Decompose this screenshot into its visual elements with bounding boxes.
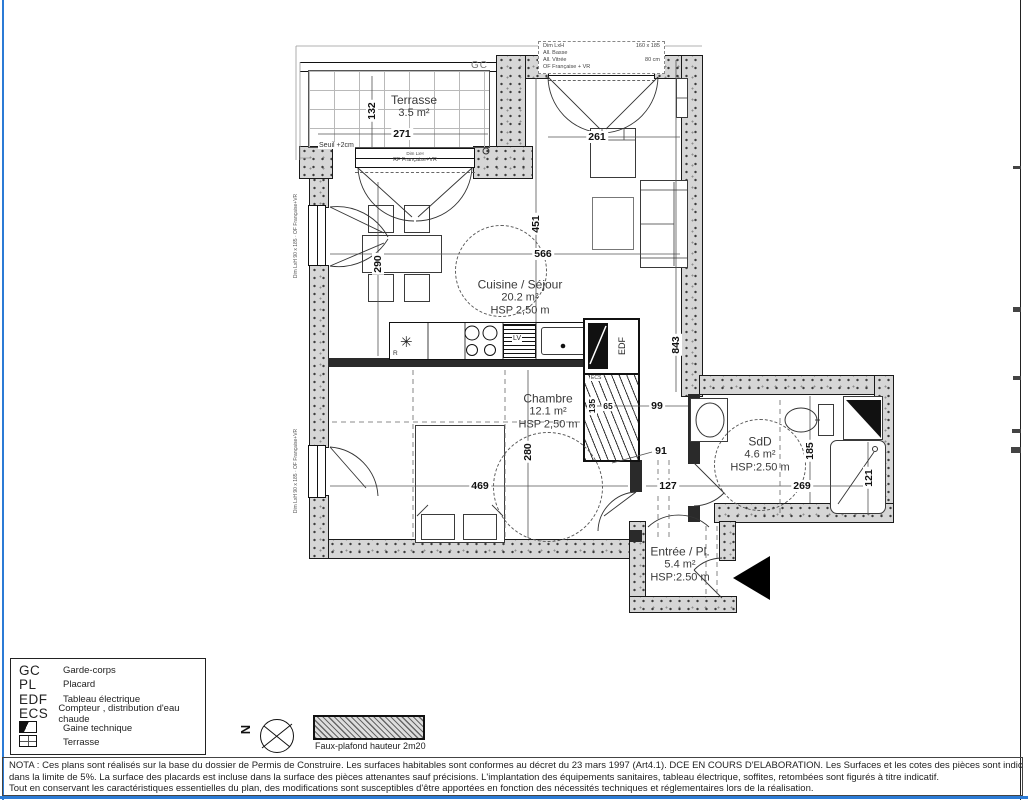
- room-hsp: HSP:2.50 m: [650, 572, 709, 585]
- edge-tick: [1012, 429, 1021, 433]
- legend-row-terrasse: Terrasse: [19, 736, 197, 750]
- dining-chair: [404, 205, 430, 233]
- room-label-terrasse: Terrasse 3.5 m²: [391, 94, 437, 120]
- wall-sdd-top: [700, 376, 893, 394]
- room-label-chambre: Chambre 12.1 m² HSP 2,50 m: [518, 393, 577, 432]
- sofa: [640, 180, 688, 268]
- dim-185: 185: [804, 440, 816, 462]
- dim-65: 65: [601, 401, 614, 411]
- shower-tray: [830, 440, 886, 514]
- legend-row-pl: PL Placard: [19, 678, 197, 692]
- terrace-door-annotation: Dim LxH RF Française+VR: [358, 150, 472, 164]
- room-hsp: HSP 2,50 m: [478, 305, 563, 318]
- legend-row-ecs: ECS Compteur , distribution d'eau chaude: [19, 707, 197, 721]
- room-label-cuisine: Cuisine / Séjour 20.2 m² HSP 2,50 m: [478, 279, 563, 318]
- dim-269: 269: [791, 480, 813, 492]
- window-chambre: [308, 445, 326, 498]
- nota-line-1: NOTA : Ces plans sont réalisés sur la ba…: [9, 760, 1016, 772]
- legend-abbr: ECS: [19, 706, 58, 721]
- legend-abbr: PL: [19, 677, 63, 692]
- win-note-dim-label: Dim LxH: [543, 43, 564, 50]
- edge-tick: [1013, 376, 1021, 380]
- faux-plafond-swatch: [313, 715, 425, 740]
- dining-chair: [368, 205, 394, 233]
- partition-sdd-left-stub: [688, 506, 700, 522]
- legend-label: Gaine technique: [63, 723, 132, 734]
- pillow: [421, 514, 455, 540]
- dim-127: 127: [657, 480, 679, 492]
- terrace-door-note-dim: Dim LxH: [358, 150, 472, 157]
- wc-tank: [818, 404, 834, 436]
- room-area: 3.5 m²: [391, 107, 437, 120]
- dim-135: 135: [587, 397, 597, 415]
- win-note-dim-value: 160 x 185: [636, 43, 660, 50]
- nota-box: NOTA : Ces plans sont réalisés sur la ba…: [2, 757, 1023, 796]
- dining-chair: [404, 274, 430, 302]
- washbasin-cabinet: [690, 398, 728, 442]
- win-note-allege-basse: All. Basse: [543, 50, 660, 57]
- room-area: 4.6 m²: [730, 449, 789, 462]
- wall-entry-bottom: [630, 597, 736, 612]
- legend-label: Placard: [63, 679, 95, 690]
- terrace-door-note-type: RF Française+VR: [358, 157, 472, 164]
- wall-left-mid: [310, 266, 328, 447]
- dim-99: 99: [649, 400, 665, 412]
- sheet-right-frame-line: [1020, 0, 1021, 800]
- edge-tick: [1011, 447, 1021, 453]
- window-dining-annotation: Dim LxH 90 x 185 · OF Française+VR: [293, 194, 299, 278]
- technical-shaft: [583, 373, 640, 462]
- dim-566: 566: [532, 248, 554, 260]
- terrasse-icon: [19, 735, 37, 747]
- floor-plan-sheet: Terrasse 3.5 m² GC Seuil +2cm Dim LxH 16…: [0, 0, 1028, 800]
- win-note-vitree-value: 80 cm: [645, 57, 660, 64]
- edf-door-panel: [588, 323, 608, 369]
- corner-unit: [843, 396, 883, 440]
- dining-chair: [368, 274, 394, 302]
- radiator: [676, 78, 688, 118]
- room-label-sdd: SdD 4.6 m² HSP:2.50 m: [730, 436, 789, 475]
- north-compass: [260, 719, 294, 753]
- window-dining: [308, 205, 326, 266]
- room-area: 12.1 m²: [518, 406, 577, 419]
- room-hsp: HSP:2.50 m: [730, 462, 789, 475]
- ecs-label: ECS: [590, 375, 602, 381]
- room-name: SdD: [730, 436, 789, 449]
- dim-271: 271: [391, 128, 413, 140]
- nota-line-2: dans la limite de 5%. La surface des pla…: [9, 772, 1016, 784]
- faux-plafond-label: Faux-plafond hauteur 2m20: [315, 741, 426, 751]
- window-chambre-annotation: Dim LxH 90 x 185 · OF Française+VR: [293, 429, 299, 513]
- room-area: 5.4 m²: [650, 559, 709, 572]
- win-note-vitree-label: All. Vitrée: [543, 57, 566, 64]
- dim-280: 280: [522, 441, 534, 463]
- legend-label: Garde-corps: [63, 665, 116, 676]
- room-name: Terrasse: [391, 94, 437, 107]
- wall-terrace-corner-left: [300, 147, 332, 178]
- dim-290: 290: [372, 253, 384, 275]
- wall-terrace-corner-right: [474, 147, 532, 178]
- pillow: [463, 514, 497, 540]
- dishwasher-label: LV: [512, 335, 522, 342]
- legend-row-gc: GC Garde-corps: [19, 663, 197, 677]
- dim-469: 469: [469, 480, 491, 492]
- legend-abbr: EDF: [19, 692, 63, 707]
- legend-label: Terrasse: [63, 737, 99, 748]
- hob-symbol: ✳: [400, 333, 413, 351]
- sheet-left-blue-edge: [2, 0, 4, 800]
- wall-left-lower: [310, 496, 328, 558]
- edge-tick: [1013, 307, 1021, 312]
- dim-121: 121: [863, 467, 875, 489]
- partition-chambre-entry-bottom: [630, 530, 642, 542]
- gc-label: GC: [471, 60, 488, 71]
- room-name: Entrée / Pl.: [650, 546, 709, 559]
- room-name: Cuisine / Séjour: [478, 279, 563, 292]
- legend-abbr: GC: [19, 663, 63, 678]
- partition-chambre-entry-top: [630, 460, 642, 492]
- window-annotation-top: Dim LxH 160 x 185 All. Basse All. Vitrée…: [538, 41, 665, 74]
- dim-843: 843: [670, 334, 682, 356]
- fridge-label: R: [393, 350, 398, 357]
- turning-circle-chambre: [493, 432, 603, 542]
- gaine-technique-icon: [19, 721, 37, 733]
- dim-91: 91: [653, 445, 669, 457]
- seuil-label: Seuil +2cm: [318, 142, 355, 149]
- rug: [592, 197, 634, 250]
- entrance-arrow: [733, 556, 770, 600]
- dim-132: 132: [366, 100, 378, 122]
- window-sejour-top-projection: [548, 80, 655, 81]
- dim-451: 451: [530, 213, 542, 235]
- legend-row-gaine: Gaine technique: [19, 721, 197, 735]
- nota-line-3: Tout en conservant les caractéristiques …: [9, 783, 1016, 795]
- edf-label: EDF: [617, 335, 627, 355]
- legend-box: GC Garde-corps PL Placard EDF Tableau él…: [10, 658, 206, 755]
- terrace-door-projection: [355, 172, 475, 173]
- wall-entry-right: [720, 522, 735, 560]
- north-label: N: [238, 725, 253, 734]
- room-name: Chambre: [518, 393, 577, 406]
- room-area: 20.2 m²: [478, 292, 563, 305]
- sheet-bottom-blue-edge: [0, 796, 1028, 799]
- edge-tick: [1013, 166, 1021, 169]
- room-hsp: HSP 2,50 m: [518, 419, 577, 432]
- room-label-entree: Entrée / Pl. 5.4 m² HSP:2.50 m: [650, 546, 709, 585]
- win-note-type: OF Française + VR: [543, 64, 660, 71]
- dim-261: 261: [586, 131, 608, 143]
- kitchen-sink: [541, 327, 586, 355]
